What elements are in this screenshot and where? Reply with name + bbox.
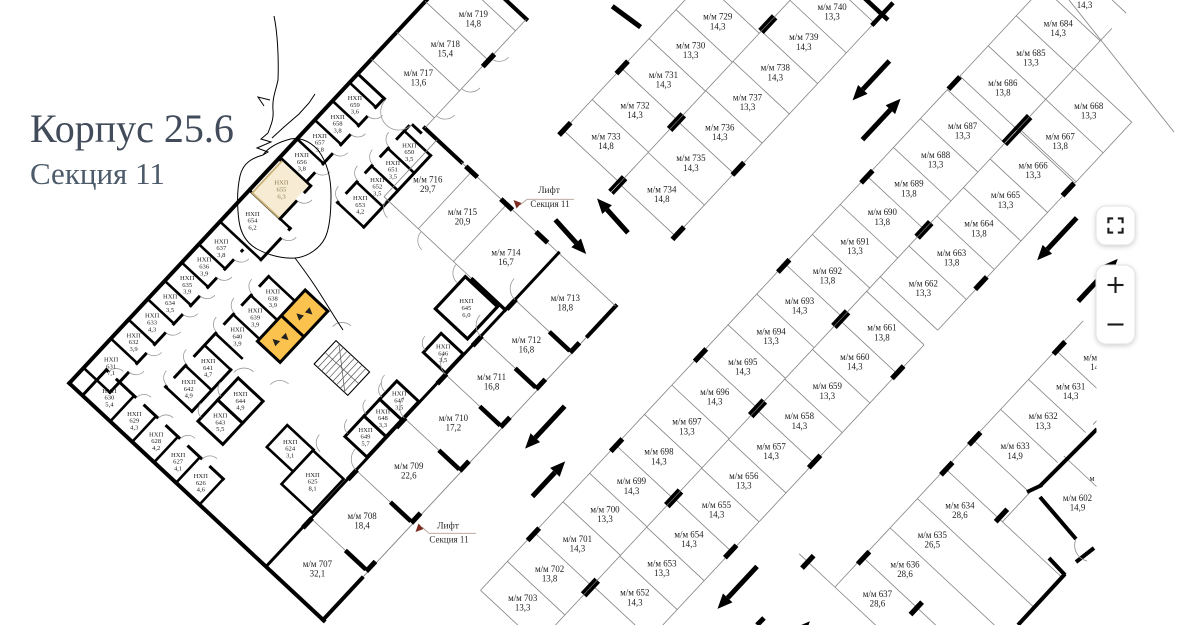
svg-text:м/м 662: м/м 662 [909,278,938,288]
svg-text:3,5: 3,5 [389,174,398,181]
svg-text:14,8: 14,8 [466,19,482,29]
svg-text:13,3: 13,3 [998,200,1014,210]
svg-text:14,8: 14,8 [598,141,614,151]
svg-text:м/м 734: м/м 734 [647,185,677,195]
svg-text:13,3: 13,3 [1035,421,1051,431]
svg-text:18,8: 18,8 [558,303,574,313]
svg-text:14,9: 14,9 [1070,503,1086,513]
svg-text:3,5: 3,5 [395,404,404,411]
svg-text:3,5: 3,5 [166,307,175,314]
svg-text:17,2: 17,2 [446,423,462,433]
svg-text:13,8: 13,8 [995,88,1011,98]
svg-text:3,8: 3,8 [298,166,307,173]
svg-text:14,3: 14,3 [768,72,784,82]
svg-text:м/м 602: м/м 602 [1063,493,1092,503]
svg-text:м/м 660: м/м 660 [840,352,870,362]
svg-text:м/м 698: м/м 698 [644,447,674,457]
svg-text:м/м 685: м/м 685 [1016,48,1046,58]
svg-text:м/м 667: м/м 667 [1046,132,1076,142]
svg-text:м/м 653: м/м 653 [647,559,677,569]
svg-text:м/м 637: м/м 637 [863,589,893,599]
svg-text:5,7: 5,7 [361,441,370,448]
svg-text:13,3: 13,3 [736,480,752,490]
svg-text:м/м 632: м/м 632 [1028,411,1057,421]
svg-text:16,7: 16,7 [498,257,514,267]
svg-text:4,3: 4,3 [148,326,157,333]
svg-text:м/м 659: м/м 659 [813,381,843,391]
svg-text:14,3: 14,3 [1050,28,1066,38]
svg-text:м/м 731: м/м 731 [649,70,678,80]
svg-text:м/м 732: м/м 732 [620,100,649,110]
svg-text:м/м 695: м/м 695 [728,357,758,367]
svg-text:13,3: 13,3 [928,160,944,170]
svg-text:3,8: 3,8 [217,252,226,259]
svg-text:14,3: 14,3 [792,421,808,431]
svg-text:29,7: 29,7 [420,184,436,194]
svg-text:м/м 664: м/м 664 [964,219,994,229]
svg-text:13,8: 13,8 [874,332,890,342]
svg-text:м/м 701: м/м 701 [563,534,592,544]
svg-text:м/м 700: м/м 700 [590,505,620,515]
svg-text:м/м 668: м/м 668 [1074,101,1104,111]
svg-text:м: м [1089,474,1094,483]
svg-text:м/м 718: м/м 718 [431,39,461,49]
svg-text:м/м 736: м/м 736 [705,122,735,132]
svg-text:13,8: 13,8 [901,188,917,198]
svg-text:14,3: 14,3 [1063,391,1079,401]
svg-text:м/м 684: м/м 684 [1044,19,1074,29]
svg-text:13,6: 13,6 [411,78,427,88]
svg-text:5,5: 5,5 [216,426,225,433]
svg-text:14,3: 14,3 [651,456,667,466]
svg-text:м/м 740: м/м 740 [817,2,847,12]
svg-text:14,3: 14,3 [624,486,640,496]
svg-text:м/м 713: м/м 713 [551,293,581,303]
svg-text:м/м 692: м/м 692 [813,266,842,276]
svg-text:16,8: 16,8 [484,382,500,392]
svg-text:м/м 691: м/м 691 [840,237,869,247]
svg-text:м/м 739: м/м 739 [789,32,819,42]
svg-text:5,4: 5,4 [105,401,114,408]
svg-text:13,3: 13,3 [679,426,695,436]
svg-text:16,8: 16,8 [519,344,535,354]
svg-text:3,8: 3,8 [333,127,342,134]
svg-text:Корпус 25.6: Корпус 25.6 [30,106,234,151]
svg-text:м/м 689: м/м 689 [894,179,924,189]
svg-text:13,8: 13,8 [542,574,558,584]
svg-text:м/м 730: м/м 730 [676,41,706,51]
svg-text:3,9: 3,9 [200,270,209,277]
svg-text:4,2: 4,2 [152,445,160,452]
svg-text:28,6: 28,6 [870,599,886,609]
svg-text:13,3: 13,3 [955,131,971,141]
svg-text:Секция 11: Секция 11 [429,535,468,545]
svg-text:14,8: 14,8 [654,194,670,204]
svg-text:м/м 655: м/м 655 [702,500,732,510]
svg-text:м/м 697: м/м 697 [672,417,702,427]
svg-text:14,3: 14,3 [735,366,751,376]
svg-text:8,1: 8,1 [308,486,316,493]
svg-text:м/м 656: м/м 656 [729,471,759,481]
svg-text:26,5: 26,5 [925,540,941,550]
svg-text:7,1: 7,1 [107,370,115,377]
svg-text:м/м 687: м/м 687 [948,121,978,131]
svg-text:13,3: 13,3 [740,102,756,112]
svg-text:14,9: 14,9 [1007,451,1023,461]
svg-text:м/м 663: м/м 663 [937,248,967,258]
svg-text:м/м 686: м/м 686 [988,78,1018,88]
svg-text:14,3: 14,3 [712,132,728,142]
svg-text:м/м 696: м/м 696 [700,387,730,397]
svg-text:3,5: 3,5 [439,357,448,364]
svg-text:15,4: 15,4 [438,49,454,59]
svg-text:м/м 690: м/м 690 [868,207,898,217]
svg-text:3,5: 3,5 [405,156,414,163]
svg-text:4,3: 4,3 [130,425,139,432]
svg-text:3,1: 3,1 [286,452,294,459]
svg-text:м/м 711: м/м 711 [477,372,506,382]
svg-text:м/м 708: м/м 708 [347,511,377,521]
svg-text:м/м 688: м/м 688 [921,150,951,160]
svg-text:14,3: 14,3 [763,451,779,461]
svg-text:13,8: 13,8 [971,228,987,238]
svg-text:14,3: 14,3 [681,539,697,549]
svg-text:м/м 666: м/м 666 [1018,161,1048,171]
svg-text:14,3: 14,3 [710,21,726,31]
svg-text:м/м 733: м/м 733 [591,131,621,141]
svg-text:3,3: 3,3 [379,422,388,429]
svg-text:13,8: 13,8 [944,258,960,268]
svg-text:м/м 694: м/м 694 [756,326,786,336]
svg-text:32,1: 32,1 [310,569,326,579]
svg-text:4,9: 4,9 [236,405,245,412]
svg-text:13,3: 13,3 [820,391,836,401]
svg-text:м/м 654: м/м 654 [674,530,704,540]
svg-text:м/м 712: м/м 712 [512,335,541,345]
svg-text:14,3: 14,3 [656,79,672,89]
svg-text:м/м 709: м/м 709 [394,461,424,471]
svg-text:м/м 717: м/м 717 [404,68,434,78]
svg-text:Лифт: Лифт [538,185,561,196]
svg-text:28,6: 28,6 [897,569,913,579]
svg-text:м/м 710: м/м 710 [439,413,469,423]
svg-text:4,6: 4,6 [197,487,206,494]
svg-text:м/м 737: м/м 737 [733,93,763,103]
svg-text:м/м 652: м/м 652 [620,588,649,598]
svg-text:14,3: 14,3 [1077,0,1093,10]
svg-text:13,3: 13,3 [1023,57,1039,67]
svg-text:м/м 699: м/м 699 [617,476,647,486]
svg-text:м/м 633: м/м 633 [1000,441,1030,451]
svg-text:13,3: 13,3 [1025,170,1041,180]
svg-text:18,4: 18,4 [354,521,370,531]
svg-text:4,1: 4,1 [174,466,182,473]
svg-text:м/м 719: м/м 719 [459,9,489,19]
svg-text:4,9: 4,9 [185,393,194,400]
svg-text:13,3: 13,3 [654,568,670,578]
svg-text:м/м 658: м/м 658 [785,411,815,421]
svg-text:14,3: 14,3 [707,397,723,407]
svg-text:13,8: 13,8 [1052,141,1068,151]
svg-text:м/м 636: м/м 636 [890,559,920,569]
svg-text:м/м 631: м/м 631 [1056,382,1085,392]
svg-text:22,6: 22,6 [401,471,417,481]
svg-text:3,9: 3,9 [251,321,260,328]
svg-text:м/м 693: м/м 693 [785,296,815,306]
svg-text:6,0: 6,0 [462,312,471,319]
svg-text:14,3: 14,3 [847,361,863,371]
svg-text:м/м 635: м/м 635 [918,530,948,540]
svg-text:13,3: 13,3 [824,11,840,21]
svg-text:13,3: 13,3 [683,50,699,60]
svg-text:14,3: 14,3 [683,163,699,173]
svg-text:13,8: 13,8 [875,217,891,227]
svg-text:20,9: 20,9 [455,216,471,226]
svg-text:м/м 634: м/м 634 [945,500,975,510]
svg-text:3,9: 3,9 [269,302,278,309]
svg-text:13,3: 13,3 [597,514,613,524]
svg-text:4,2: 4,2 [356,209,364,216]
svg-text:3,5: 3,5 [373,190,382,197]
svg-text:Секция 11: Секция 11 [530,199,569,209]
svg-text:3,9: 3,9 [233,340,242,347]
svg-text:м/м 738: м/м 738 [761,63,791,73]
svg-text:14,3: 14,3 [570,544,586,554]
svg-text:м/м 729: м/м 729 [703,12,733,22]
svg-text:3,9: 3,9 [129,346,138,353]
svg-text:14,3: 14,3 [796,42,812,52]
svg-text:м/м 716: м/м 716 [413,174,443,184]
svg-text:13,3: 13,3 [763,336,779,346]
svg-text:13,3: 13,3 [1081,111,1097,121]
svg-text:13,3: 13,3 [847,246,863,256]
svg-text:м/м 707: м/м 707 [303,559,333,569]
svg-text:13,3: 13,3 [515,602,531,612]
svg-text:3,9: 3,9 [183,289,192,296]
svg-text:13,3: 13,3 [916,288,932,298]
svg-text:м/м 661: м/м 661 [867,323,896,333]
svg-text:6,3: 6,3 [277,193,286,200]
svg-text:м/м 715: м/м 715 [448,207,478,217]
svg-text:Секция 11: Секция 11 [30,156,165,191]
svg-text:Лифт: Лифт [437,521,460,532]
svg-text:28,6: 28,6 [952,510,968,520]
svg-text:м/м 657: м/м 657 [757,441,787,451]
svg-text:4,7: 4,7 [204,372,213,379]
svg-text:м/м 703: м/м 703 [508,593,538,603]
svg-text:14,3: 14,3 [709,510,725,520]
svg-text:14,3: 14,3 [627,597,643,607]
svg-text:14,3: 14,3 [627,110,643,120]
svg-text:м/м 714: м/м 714 [491,247,521,257]
svg-text:6,2: 6,2 [248,224,256,231]
svg-text:м/м 665: м/м 665 [991,190,1021,200]
svg-text:14,3: 14,3 [792,306,808,316]
svg-text:м/м 735: м/м 735 [676,153,706,163]
svg-text:13,8: 13,8 [820,276,836,286]
svg-text:3,6: 3,6 [351,109,360,116]
svg-text:м/м 702: м/м 702 [535,564,564,574]
